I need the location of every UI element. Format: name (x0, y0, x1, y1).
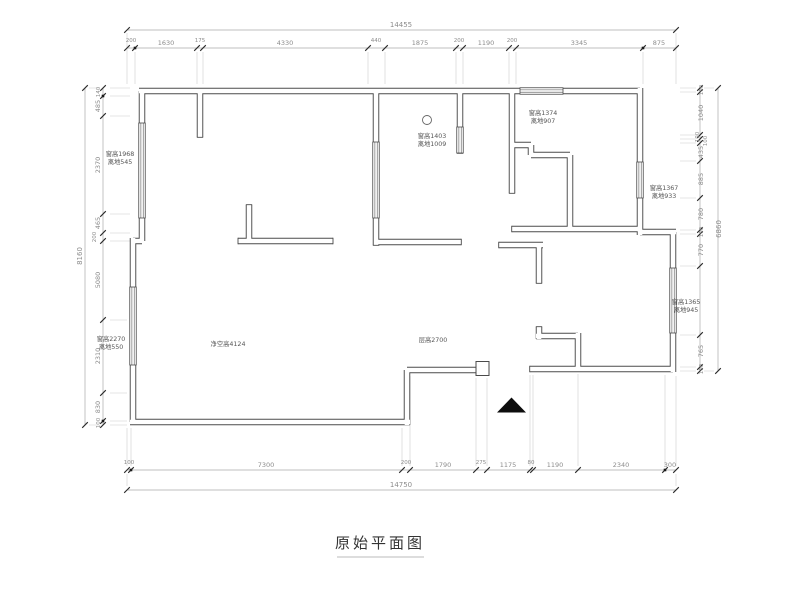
dim-label: 5080 (94, 272, 102, 289)
dim-label: 830 (94, 401, 102, 413)
tick-square (664, 469, 667, 472)
window-symbol-hall-wall (457, 127, 464, 153)
dim-label: 1175 (500, 461, 517, 469)
annotation-window-sill: 离地550 (99, 342, 124, 351)
dim-total-label: 14455 (390, 21, 412, 29)
dim-label: 100 (703, 135, 709, 146)
pipe-symbol (423, 116, 432, 125)
dim-label: 770 (697, 244, 705, 256)
dim-total-label: 6860 (715, 220, 723, 238)
dim-label: 765 (697, 345, 705, 357)
dim-label: 200 (92, 231, 98, 242)
extension-lines-bottom (127, 374, 676, 486)
dim-label: 100 (124, 460, 135, 466)
dim-label: 275 (476, 460, 487, 466)
window-symbol-left-upper (139, 123, 146, 218)
ticks-left (82, 85, 106, 428)
dim-label: 3345 (571, 39, 588, 47)
dim-label: 2340 (613, 461, 630, 469)
window-symbol-top-wall (520, 88, 563, 95)
annotation-window-sill: 离地1009 (418, 139, 447, 148)
dim-label: 435 (697, 146, 705, 158)
walls (130, 88, 676, 425)
dim-label: 100 (699, 363, 705, 374)
annotation-window-sill: 离地545 (108, 157, 133, 166)
dim-label: 4330 (277, 39, 294, 47)
tick-square (642, 47, 645, 50)
tick-square (134, 47, 137, 50)
dim-label: 1630 (158, 39, 175, 47)
wall-outlines (130, 88, 676, 425)
drawing-title: 原始平面图 (335, 534, 425, 552)
wall-cores (130, 88, 676, 425)
extension-lines-left (89, 88, 130, 425)
dim-label: 2370 (94, 157, 102, 174)
floor-plan-page: 200 1630 175 4330 440 1875 200 1190 200 … (0, 0, 800, 600)
dim-label: 780 (697, 208, 705, 220)
window-symbol-left-lower (130, 287, 137, 365)
entry-pier (476, 362, 489, 376)
dim-label: 1875 (412, 39, 429, 47)
dim-label: 200 (507, 38, 518, 44)
ticks-top (124, 27, 679, 51)
annotation-window-height: 窗高2270 (97, 334, 126, 343)
dim-label: 465 (94, 217, 102, 229)
dim-label: 885 (697, 173, 705, 185)
dimension-labels-right: 100 1040 100 100 435 885 780 100 770 765… (695, 84, 723, 374)
annotation-window-height: 窗高1367 (650, 183, 679, 192)
tick-square (102, 420, 105, 423)
dim-label: 80 (528, 460, 535, 466)
dimension-labels-bottom: 100 7300 200 1790 275 1175 80 1190 2340 … (124, 460, 676, 489)
dim-label: 875 (653, 39, 665, 47)
annotation-window-height: 窗高1403 (418, 131, 447, 140)
extension-lines-top (127, 33, 676, 84)
dim-label: 1190 (478, 39, 495, 47)
dimension-tick-squares (102, 47, 667, 472)
annotation-clear-height: 净空高4124 (211, 339, 246, 348)
annotation-window-height: 窗高1968 (106, 149, 135, 158)
dimension-labels-top: 200 1630 175 4330 440 1875 200 1190 200 … (126, 21, 665, 47)
dim-label: 440 (371, 38, 382, 44)
dim-label: 7300 (258, 461, 275, 469)
dim-label: 175 (195, 38, 206, 44)
dim-total-label: 14750 (390, 481, 412, 489)
dim-label: 200 (454, 38, 465, 44)
annotation-window-sill: 离地933 (652, 191, 677, 200)
dim-label: 485 (94, 100, 102, 112)
dim-label: 1790 (435, 461, 452, 469)
entry-marker-icon (497, 398, 526, 413)
tick-square (130, 469, 133, 472)
floor-plan-drawing: 200 1630 175 4330 440 1875 200 1190 200 … (0, 0, 800, 600)
dim-label: 300 (664, 461, 676, 469)
annotation-window-height: 窗高1374 (529, 108, 558, 117)
dim-label: 1190 (547, 461, 564, 469)
annotation-window-height: 窗高1365 (672, 297, 701, 306)
extension-lines-right (680, 88, 714, 371)
dim-total-label: 8160 (76, 247, 84, 265)
window-symbol-right-upper (637, 162, 644, 198)
extension-lines (89, 33, 714, 486)
dim-label: 100 (96, 417, 102, 428)
tick-square (102, 95, 105, 98)
dim-label: 200 (126, 38, 137, 44)
dim-label: 100 (695, 131, 701, 142)
annotation-room-height: 层高2700 (419, 335, 448, 344)
dim-label: 1040 (697, 105, 705, 122)
dim-label: 100 (699, 226, 705, 237)
window-symbol-center-wall (373, 142, 380, 218)
dim-label: 140 (96, 86, 102, 97)
wall-end-caps (197, 137, 542, 373)
dim-label: 100 (699, 84, 705, 95)
dim-label: 200 (401, 460, 412, 466)
annotation-window-sill: 离地907 (531, 116, 556, 125)
dimension-labels-left: 140 485 2370 465 200 5080 2310 830 100 8… (76, 86, 102, 428)
annotation-window-sill: 离地945 (674, 305, 699, 314)
